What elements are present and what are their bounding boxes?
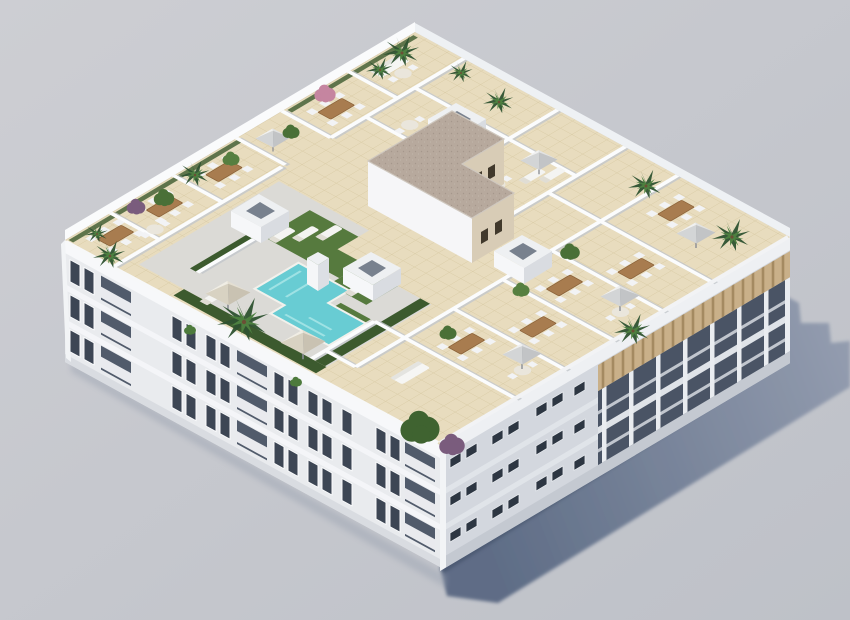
render-canvas: Aerial 3D architectural render of a whit… bbox=[0, 0, 850, 620]
pool-stair-pier bbox=[307, 252, 329, 291]
corner-pilaster bbox=[440, 441, 446, 571]
aerial-building-render: Aerial 3D architectural render of a whit… bbox=[0, 0, 850, 620]
